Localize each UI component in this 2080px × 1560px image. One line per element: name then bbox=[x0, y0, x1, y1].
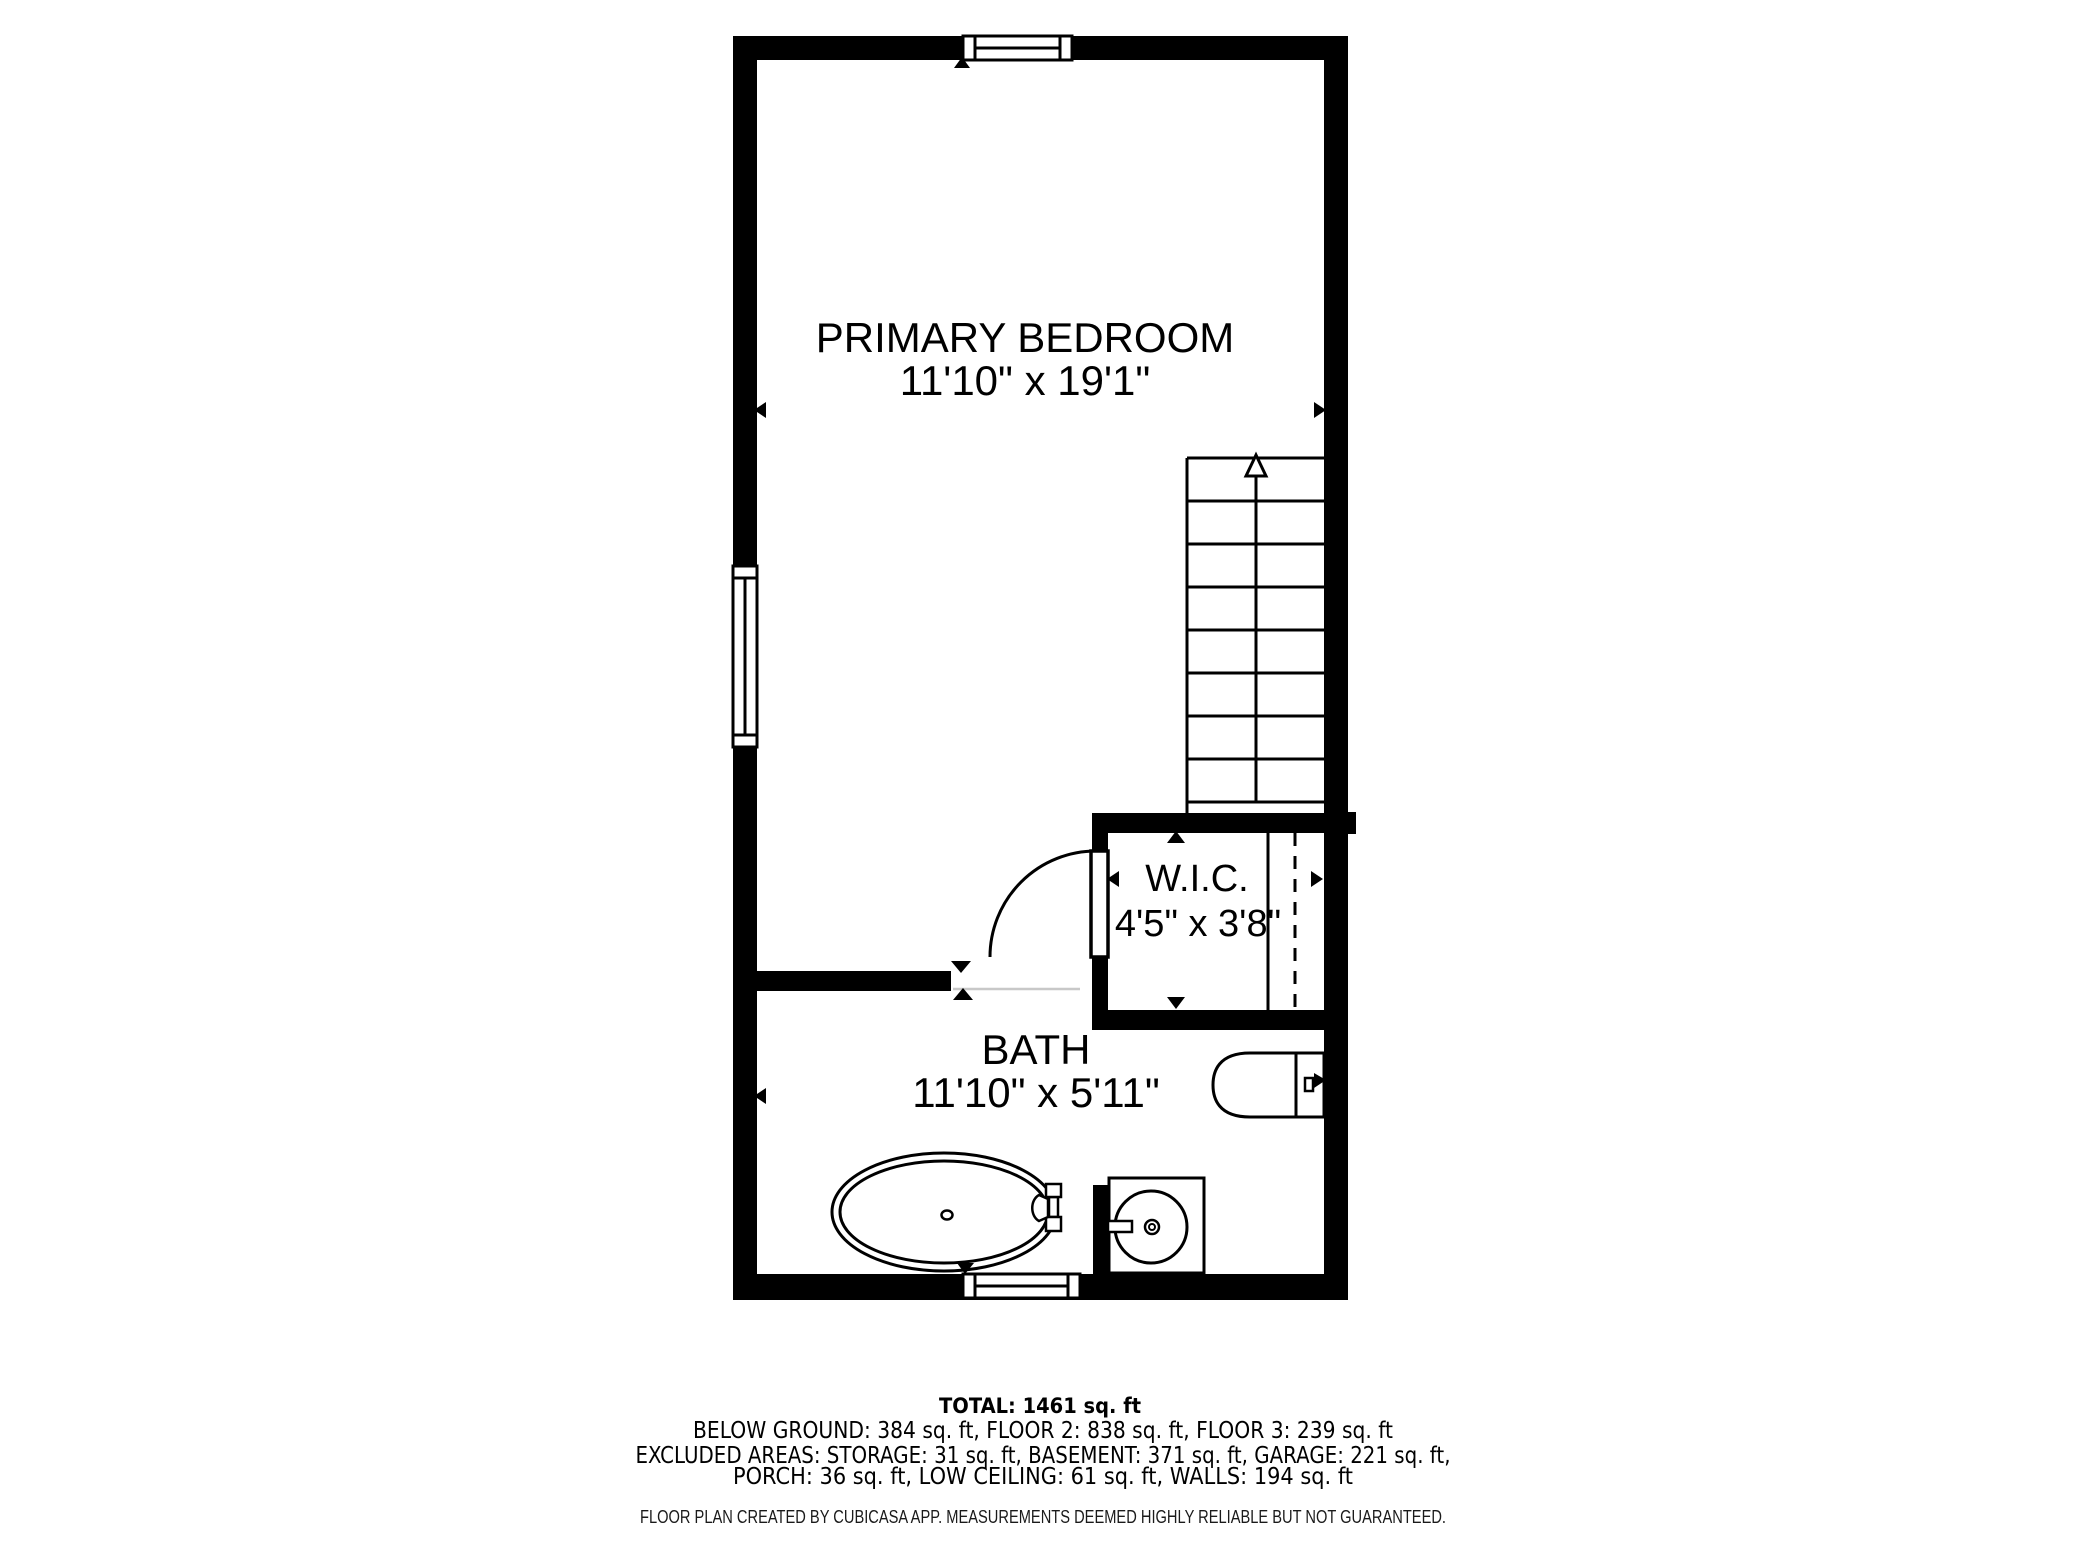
toilet-icon bbox=[1213, 1053, 1324, 1117]
wall-wic-left-lower bbox=[1092, 958, 1108, 1010]
excluded-areas-text-2: PORCH: 36 sq. ft, LOW CEILING: 61 sq. ft… bbox=[733, 1464, 1353, 1490]
wic-label: W.I.C. bbox=[1145, 858, 1248, 900]
sink-vanity-icon bbox=[1108, 1178, 1204, 1273]
wall-right bbox=[1324, 36, 1348, 1300]
floor-plan-page: PRIMARY BEDROOM 11'10" x 19'1" W.I.C. 4'… bbox=[0, 0, 2080, 1560]
window-top bbox=[963, 36, 1072, 60]
marker-opening-down bbox=[951, 961, 971, 973]
wic-dims: 4'5" x 3'8" bbox=[1115, 903, 1281, 945]
floor-plan: PRIMARY BEDROOM 11'10" x 19'1" W.I.C. 4'… bbox=[0, 0, 2080, 1560]
door-swing-arc-icon bbox=[990, 851, 1096, 957]
disclaimer-text: FLOOR PLAN CREATED BY CUBICASA APP. MEAS… bbox=[640, 1506, 1446, 1527]
wall-bath-separator bbox=[733, 971, 951, 991]
bath-dims: 11'10" x 5'11" bbox=[912, 1069, 1159, 1116]
door-leaf-icon bbox=[1091, 851, 1108, 957]
bath-label: BATH bbox=[982, 1026, 1091, 1073]
bathtub-icon bbox=[832, 1153, 1061, 1271]
primary-bedroom-label: PRIMARY BEDROOM bbox=[816, 314, 1235, 361]
floor-areas-text: BELOW GROUND: 384 sq. ft, FLOOR 2: 838 s… bbox=[693, 1418, 1393, 1444]
wall-wic-bottom bbox=[1092, 1010, 1348, 1030]
primary-bedroom-dims: 11'10" x 19'1" bbox=[900, 357, 1151, 404]
window-bottom bbox=[963, 1274, 1080, 1298]
window-left bbox=[733, 566, 757, 747]
wall-left-lower bbox=[733, 747, 757, 1300]
sink-faucet bbox=[1108, 1221, 1132, 1232]
marker-wic-right bbox=[1311, 871, 1323, 887]
total-area-text: TOTAL: 1461 sq. ft bbox=[939, 1394, 1141, 1418]
tub-faucet bbox=[1032, 1195, 1048, 1221]
wall-sink-separator bbox=[1093, 1185, 1108, 1276]
door-wic bbox=[990, 851, 1108, 957]
wall-wic-top bbox=[1092, 813, 1352, 833]
stairs bbox=[1187, 455, 1324, 813]
marker-wic-down bbox=[1167, 997, 1185, 1009]
tub-drain bbox=[942, 1211, 953, 1220]
wall-left-upper bbox=[733, 36, 757, 566]
